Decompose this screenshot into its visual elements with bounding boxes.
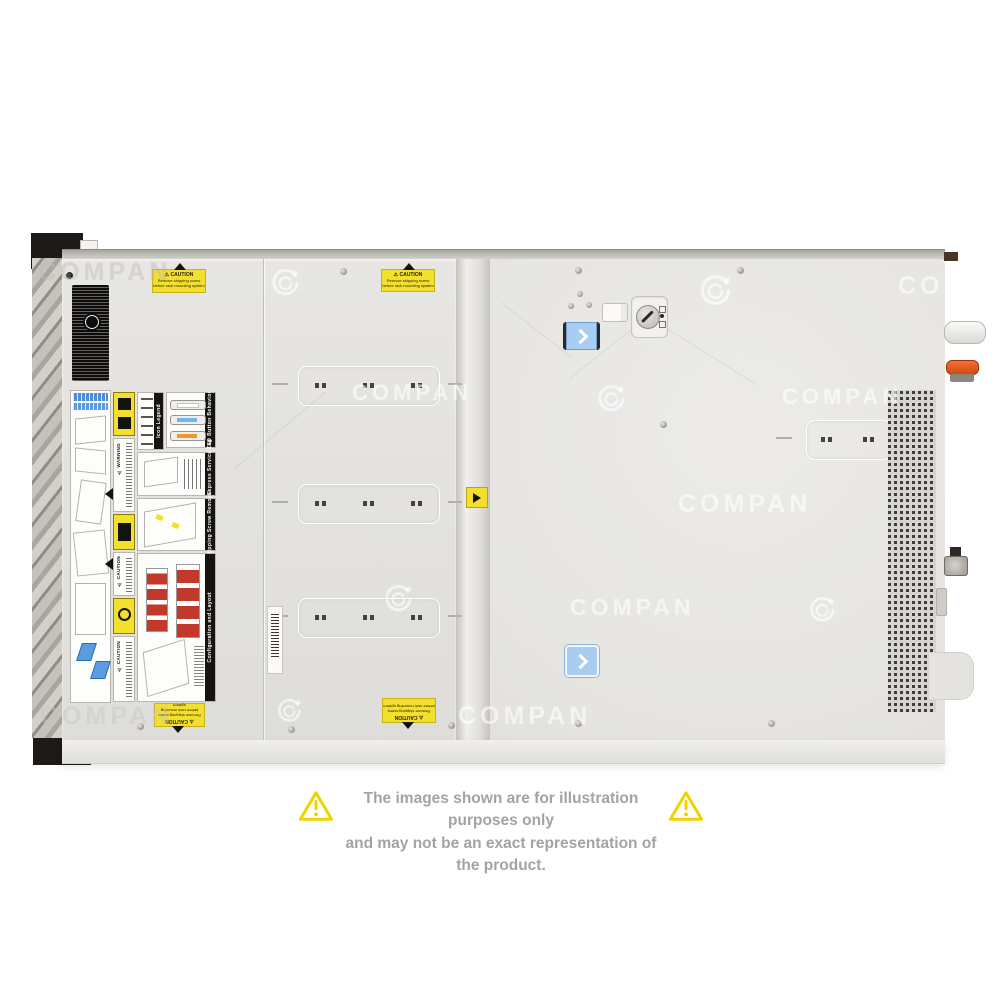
fine-print — [126, 641, 132, 697]
warning-triangle-icon — [668, 789, 704, 823]
caution-sticker-bottom-right: ⚠ CAUTION Remove shipping screw before r… — [382, 698, 436, 723]
screw — [137, 723, 144, 730]
icon-legend-title: Icon Legend — [156, 404, 162, 438]
caution-title: ⚠ CAUTION — [116, 556, 121, 586]
disclaimer-text: The images shown are for illustration pu… — [340, 788, 662, 878]
lock-dot-icon — [660, 314, 664, 318]
diagram-sketch — [75, 479, 107, 524]
latch-slider — [602, 303, 628, 322]
panel-mark — [448, 615, 462, 617]
vent-slots — [411, 615, 422, 620]
caution-line: Remove shipping screw — [383, 709, 435, 714]
regulatory-emblem — [83, 313, 101, 331]
fine-print — [126, 443, 132, 507]
led-bar-idle — [170, 400, 206, 410]
label-header-bar: Configuration and Layout — [205, 554, 215, 701]
led-bar-orange — [170, 431, 206, 441]
blue-part-icon — [90, 661, 111, 679]
diagram-sketch — [75, 447, 106, 474]
caution-text-strip: ⚠ CAUTION — [113, 636, 135, 702]
screw — [448, 722, 455, 729]
caution-text-strip: ⚠ CAUTION — [113, 552, 135, 596]
screw — [66, 272, 73, 279]
blue-header-bar — [73, 403, 108, 410]
embossed-vent-plate — [298, 598, 440, 638]
psu-handle — [944, 321, 986, 344]
panel-mark — [776, 437, 792, 439]
pointer-icon — [174, 263, 186, 270]
label-header-bar: Shipping Screw Removal — [205, 499, 215, 550]
screw — [768, 720, 775, 727]
label-header-bar: Icon Legend — [154, 393, 163, 449]
hazard-glyph — [118, 523, 131, 541]
pointer-left-icon — [105, 558, 113, 570]
caution-title: ⚠ CAUTION — [383, 714, 435, 720]
screw — [340, 268, 347, 275]
warning-title: ⚠ WARNING — [116, 443, 121, 475]
warning-text-strip: ⚠ WARNING — [113, 438, 135, 512]
disclaimer: The images shown are for illustration pu… — [0, 785, 1000, 835]
screw — [577, 291, 583, 297]
diagram-sketch — [144, 502, 196, 547]
led-segment-orange — [177, 434, 197, 438]
configuration-layout-label: Configuration and Layout — [137, 553, 216, 702]
config-title: Configuration and Layout — [207, 592, 213, 662]
warning-strip: ⚠ WARNING ⚠ CAUTION ⚠ CAUTION — [113, 390, 135, 703]
hazard-glyph — [118, 417, 131, 429]
chassis-bottom-edge — [62, 740, 945, 764]
diagram-sketch — [75, 415, 106, 444]
drive-map-red — [146, 568, 168, 632]
chevron-right-icon — [573, 653, 589, 669]
cover-release-button-bottom — [565, 645, 599, 677]
lever-hardware — [950, 374, 974, 382]
vent-slots — [363, 501, 374, 506]
system-tasks-label — [70, 390, 111, 703]
lock-closed-icon — [659, 306, 666, 313]
screw — [737, 267, 744, 274]
led-bar-blue — [170, 415, 206, 425]
caution-sticker-bottom-left: ⚠ CAUTION Remove shipping screw before r… — [154, 703, 205, 727]
panel-mark — [272, 501, 288, 503]
fine-print — [194, 646, 204, 686]
caution-line: Remove shipping screw — [155, 713, 204, 718]
diagram-sketch — [75, 583, 106, 635]
caution-line: before rack mounting system — [383, 704, 435, 709]
vent-slots — [411, 383, 422, 388]
caution-line: before rack mounting system — [382, 283, 434, 288]
drive-map-red — [176, 564, 200, 638]
panel-mark — [272, 383, 288, 385]
chassis-sketch — [143, 639, 190, 697]
caution-sticker-top-left: ⚠ CAUTION Remove shipping screw before r… — [152, 269, 206, 293]
screw — [568, 303, 574, 309]
disclaimer-line-2: and may not be an exact representation o… — [340, 833, 662, 878]
thumbscrew-cap — [950, 547, 961, 556]
vent-slots — [863, 437, 874, 442]
disclaimer-line-1: The images shown are for illustration pu… — [340, 788, 662, 833]
panel-mark — [448, 383, 462, 385]
vent-slots — [363, 383, 374, 388]
caution-line: before rack mounting system — [155, 703, 204, 713]
hazard-art-yellow — [113, 514, 135, 550]
screw — [575, 267, 582, 274]
regulatory-label — [72, 285, 109, 381]
rear-tab — [944, 252, 958, 261]
legend-rows — [141, 397, 153, 445]
vent-slots — [315, 383, 326, 388]
fine-print — [184, 459, 202, 489]
caution-line: before rack mounting system — [153, 283, 205, 288]
led-segment-blue — [177, 418, 197, 422]
pointer-icon — [172, 726, 184, 733]
triangle-right-icon — [473, 493, 481, 503]
caution-title: ⚠ CAUTION — [116, 641, 121, 671]
vent-slots — [315, 501, 326, 506]
icon-legend-label: Icon Legend — [137, 392, 164, 450]
shipping-screw-title: Shipping Screw Removal — [207, 490, 213, 559]
side-tab — [936, 588, 947, 616]
vent-slots — [363, 615, 374, 620]
warning-triangle-icon — [298, 789, 334, 823]
blue-header-bar — [73, 393, 108, 401]
warning-triangle-sticker — [466, 487, 488, 508]
thumbscrew — [944, 556, 968, 576]
screw — [660, 421, 667, 428]
hazard-art-yellow — [113, 598, 135, 634]
hazard-glyph — [118, 398, 131, 410]
fine-print — [126, 556, 132, 592]
top-cover-rear-section — [490, 259, 945, 740]
pointer-left-icon — [105, 488, 113, 500]
diagram-sketch — [73, 529, 109, 576]
barcode-label — [267, 606, 283, 674]
screw — [575, 720, 582, 727]
pointer-icon — [403, 263, 415, 270]
service-tag-label: Rear Express Service Tag — [137, 452, 216, 496]
product-photo-canvas: ⚠ CAUTION Remove shipping screw before r… — [0, 0, 1000, 1000]
clock-icon — [118, 608, 131, 621]
led-segment-white — [177, 403, 199, 408]
screw — [586, 302, 592, 308]
barcode — [271, 613, 279, 657]
service-label-cluster: ⚠ WARNING ⚠ CAUTION ⚠ CAUTION — [70, 390, 216, 704]
blue-part-icon — [76, 643, 97, 661]
pointer-icon — [402, 722, 414, 729]
hazard-art-yellow — [113, 392, 135, 436]
embossed-vent-plate — [298, 484, 440, 524]
vent-slots — [315, 615, 326, 620]
cover-release-button-top — [563, 322, 600, 350]
key-lock — [631, 296, 668, 338]
diagram-sketch — [144, 457, 178, 488]
release-lever-orange — [946, 360, 979, 375]
front-bezel-strip — [32, 258, 64, 738]
cover-seam — [263, 259, 264, 740]
embossed-vent-plate — [298, 366, 440, 406]
vent-slots — [411, 501, 422, 506]
caution-sticker-top-right: ⚠ CAUTION Remove shipping screw before r… — [381, 269, 435, 292]
screw — [288, 726, 295, 733]
panel-mark — [448, 501, 462, 503]
shipping-screw-label: Shipping Screw Removal — [137, 498, 216, 551]
embossed-vent-plate — [806, 420, 892, 460]
caution-title: ⚠ CAUTION — [155, 718, 204, 724]
side-flange — [928, 652, 974, 700]
chevron-right-icon — [572, 328, 588, 344]
vent-slots — [821, 437, 832, 442]
lock-open-icon — [659, 321, 666, 328]
